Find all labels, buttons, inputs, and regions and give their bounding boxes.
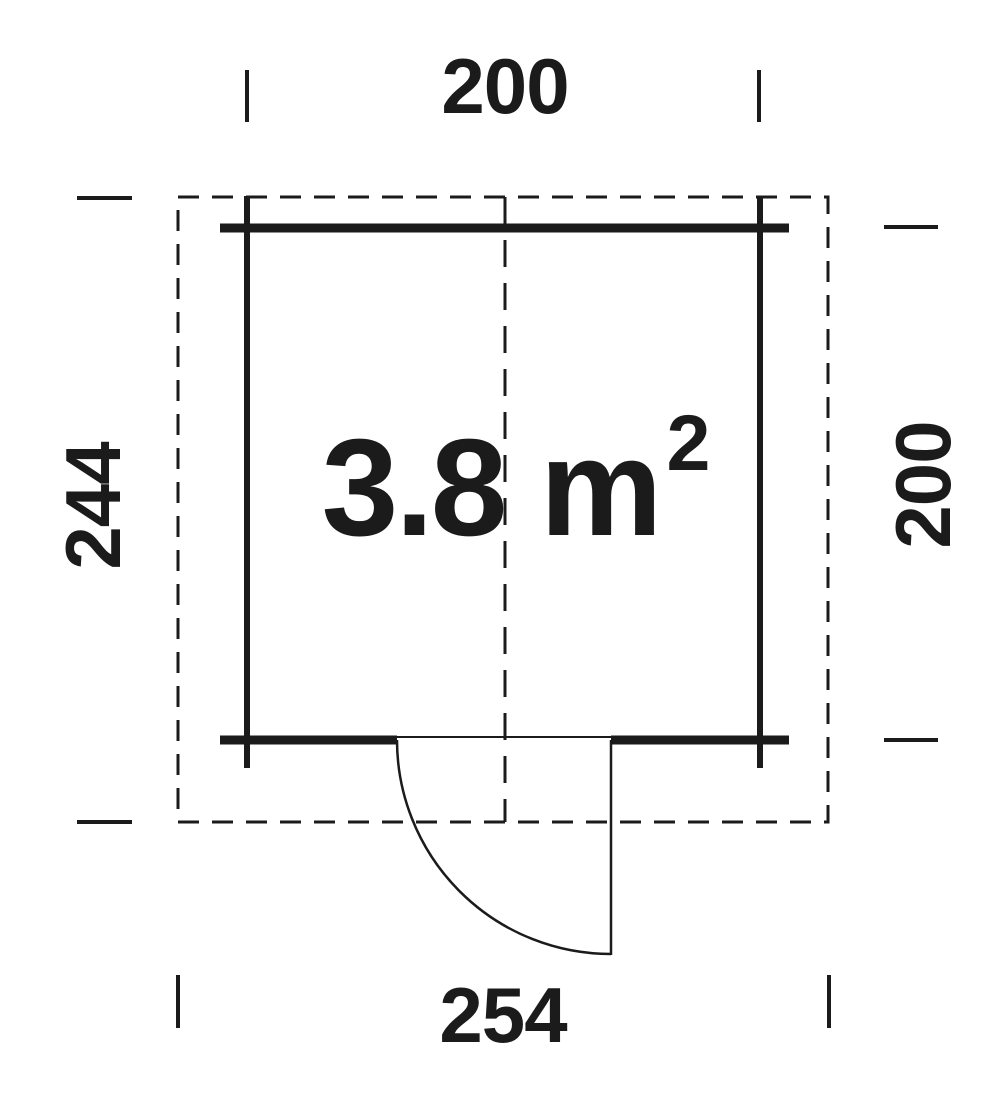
area-value: 3.8 m [322,419,660,557]
dimension-top: 200 [441,47,568,125]
floor-plan: 200 244 200 254 3.8 m2 [0,0,1000,1096]
dimension-left: 244 [54,442,132,569]
area-label: 3.8 m2 [322,419,711,557]
dimension-bottom: 254 [439,976,566,1054]
area-exponent: 2 [666,403,710,482]
dimension-right: 200 [884,421,962,548]
